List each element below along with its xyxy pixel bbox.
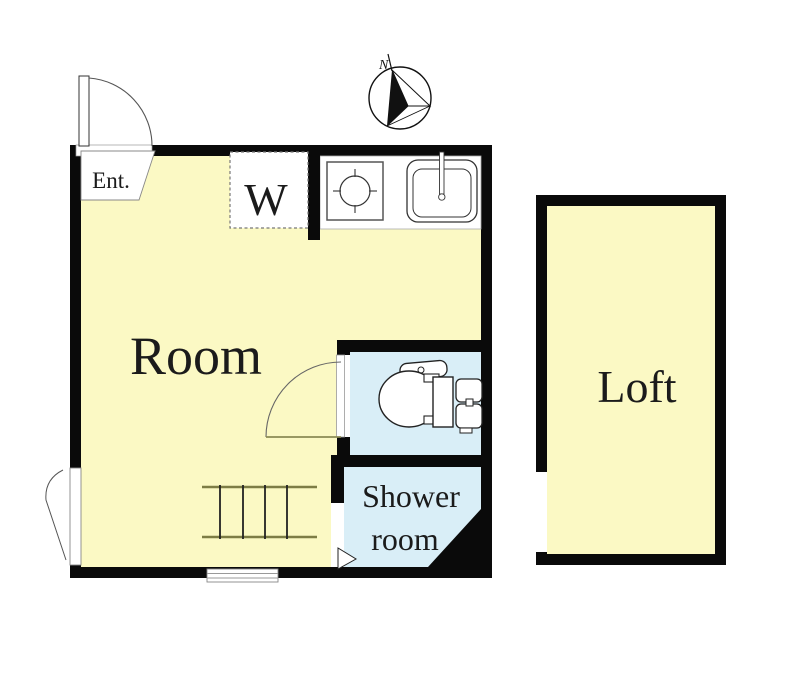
toilet-shower-divider-wall [331, 455, 492, 467]
loft-label: Loft [597, 361, 676, 412]
washer-label: W [244, 174, 288, 225]
faucet-spout [439, 194, 445, 200]
toilet-top-wall [337, 340, 492, 352]
loft-unit: Loft [536, 195, 726, 565]
window-icon [207, 569, 278, 582]
room-label: Room [130, 326, 262, 386]
shower-room-label-line2: room [371, 521, 439, 557]
entrance-door-leaf [79, 76, 89, 146]
entrance-label: Ent. [92, 168, 130, 193]
main-unit: W [46, 76, 492, 582]
loft-opening [536, 472, 547, 552]
toilet-basin-bottom [456, 404, 482, 428]
floor-plan-drawing: N W [0, 0, 800, 691]
shower-room: Shower room [331, 467, 481, 578]
shower-room-label-line1: Shower [362, 478, 460, 514]
toilet-basin-tap [466, 399, 473, 406]
kitchen-partition-wall [308, 145, 320, 240]
washing-machine-space-icon: W [230, 152, 308, 228]
compass-north-label: N [378, 58, 389, 73]
toilet-tank [433, 377, 453, 427]
left-window-opening [70, 468, 81, 565]
kitchen-sink-icon [407, 152, 477, 222]
toilet-door-leaf-closed [337, 355, 345, 437]
toilet-basin-foot [460, 428, 472, 433]
bottom-window [207, 569, 278, 582]
floor-plan-canvas: N W [0, 0, 800, 691]
faucet [440, 152, 445, 194]
stove-burner-icon [327, 162, 383, 220]
